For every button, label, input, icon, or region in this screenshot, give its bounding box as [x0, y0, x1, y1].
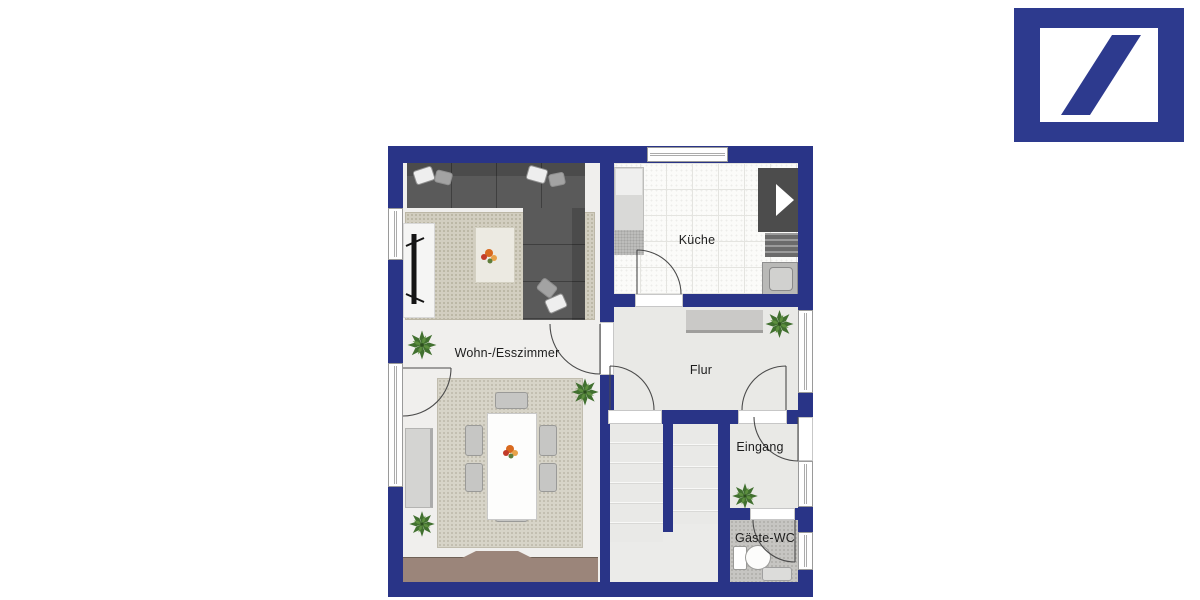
- room-label-gaeste-wc: Gäste-WC: [735, 531, 795, 545]
- appliance-arrow: [776, 184, 794, 216]
- dining-cabinet: [405, 428, 433, 508]
- wall-segment: [600, 424, 610, 582]
- dining-chair: [465, 425, 483, 456]
- wc-sink: [762, 567, 792, 581]
- potted-plant: [407, 508, 437, 540]
- room-label-kueche: Küche: [679, 233, 715, 247]
- deutsche-bank-logo-icon: [1014, 8, 1184, 142]
- wall-segment: [388, 146, 813, 163]
- wall-segment: [614, 294, 635, 307]
- window: [388, 208, 403, 260]
- wooden-deck: [403, 557, 598, 582]
- door-threshold: [738, 410, 787, 424]
- potted-plant: [763, 307, 796, 341]
- wall-segment: [388, 582, 813, 597]
- window: [798, 532, 813, 570]
- kitchen-counter-top: [616, 169, 642, 195]
- wall-segment: [600, 375, 614, 410]
- wall-segment: [795, 508, 798, 520]
- potted-plant: [405, 328, 439, 362]
- wall-segment: [600, 163, 614, 322]
- stove-grille: [765, 233, 798, 257]
- window: [647, 147, 728, 162]
- tv-sideboard: [403, 223, 435, 318]
- entry-sidelight-window: [798, 461, 813, 507]
- terrace-door-window: [388, 363, 403, 487]
- entry-door-opening: [798, 417, 813, 461]
- potted-plant: [568, 376, 602, 408]
- door-threshold: [600, 322, 614, 375]
- wall-segment: [683, 294, 798, 307]
- wall-segment: [600, 410, 608, 424]
- coffee-table: [475, 227, 515, 283]
- room-label-wohn-esszimmer: Wohn-/Esszimmer: [455, 346, 560, 360]
- stairs-right-flight: [673, 424, 718, 524]
- stair-spine-wall: [663, 424, 673, 532]
- dining-chair: [539, 463, 557, 492]
- stairs-left-flight: [610, 424, 663, 542]
- dining-chair: [539, 425, 557, 456]
- screenshot-canvas: Küche Wohn-/Esszimmer Flur Eingang Gäste…: [0, 0, 1200, 600]
- door-threshold: [635, 294, 683, 307]
- room-label-flur: Flur: [690, 363, 712, 377]
- door-threshold: [608, 410, 662, 424]
- hallway-sideboard: [686, 310, 763, 333]
- wall-segment: [787, 410, 798, 424]
- floor-plan: Küche Wohn-/Esszimmer Flur Eingang Gäste…: [388, 146, 813, 597]
- potted-plant: [730, 480, 760, 512]
- room-label-eingang: Eingang: [736, 440, 783, 454]
- dining-chair: [465, 463, 483, 492]
- dining-table: [487, 413, 537, 520]
- kitchen-counter-low: [614, 230, 644, 255]
- kitchen-sink: [769, 267, 793, 291]
- dining-chair: [495, 392, 528, 409]
- window: [798, 310, 813, 393]
- wall-segment: [718, 424, 730, 582]
- wall-segment: [662, 410, 738, 424]
